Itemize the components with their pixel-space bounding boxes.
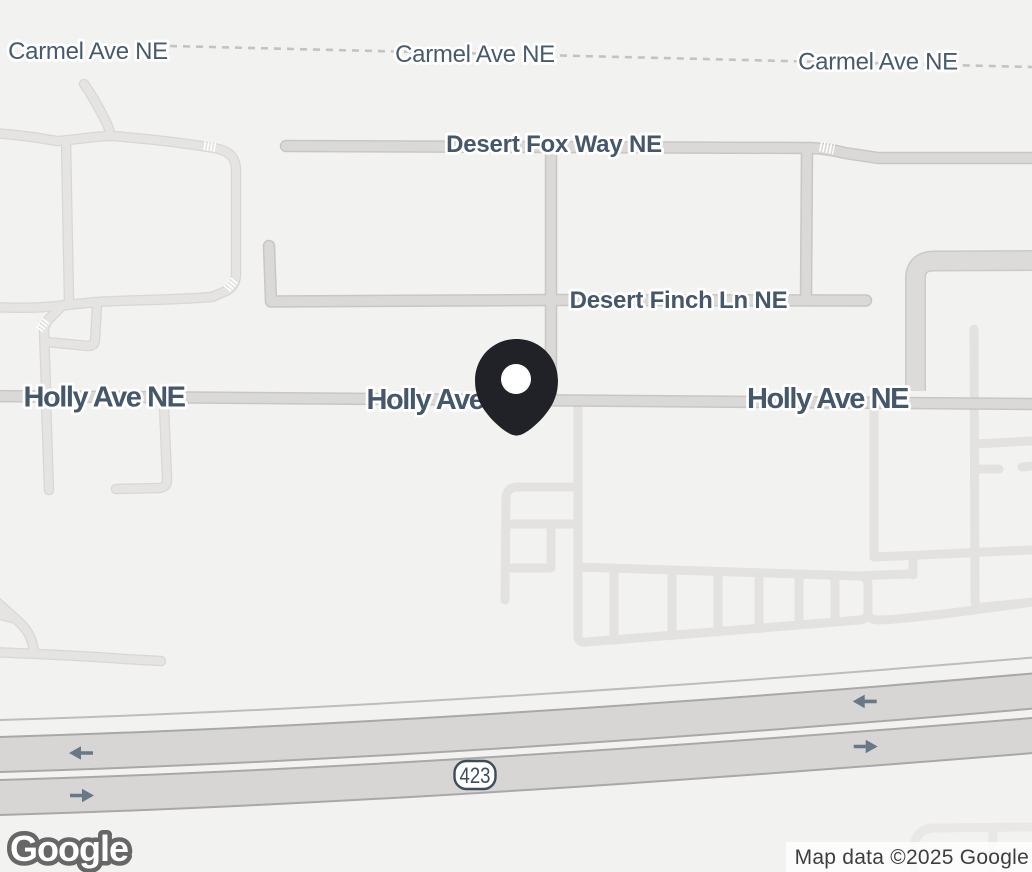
svg-text:423: 423 (460, 763, 491, 788)
svg-text:Carmel Ave NE: Carmel Ave NE (798, 49, 958, 76)
svg-text:Map data ©2025 Google: Map data ©2025 Google (795, 846, 1029, 869)
svg-text:Desert Fox Way NE: Desert Fox Way NE (446, 131, 662, 158)
svg-text:Holly Ave NE: Holly Ave NE (747, 383, 909, 415)
svg-text:Desert Finch Ln NE: Desert Finch Ln NE (570, 287, 788, 314)
svg-text:Carmel Ave NE: Carmel Ave NE (395, 41, 555, 68)
svg-text:Carmel Ave NE: Carmel Ave NE (8, 38, 168, 65)
svg-text:Google: Google (10, 828, 128, 869)
svg-text:Holly Ave NE: Holly Ave NE (24, 382, 186, 414)
